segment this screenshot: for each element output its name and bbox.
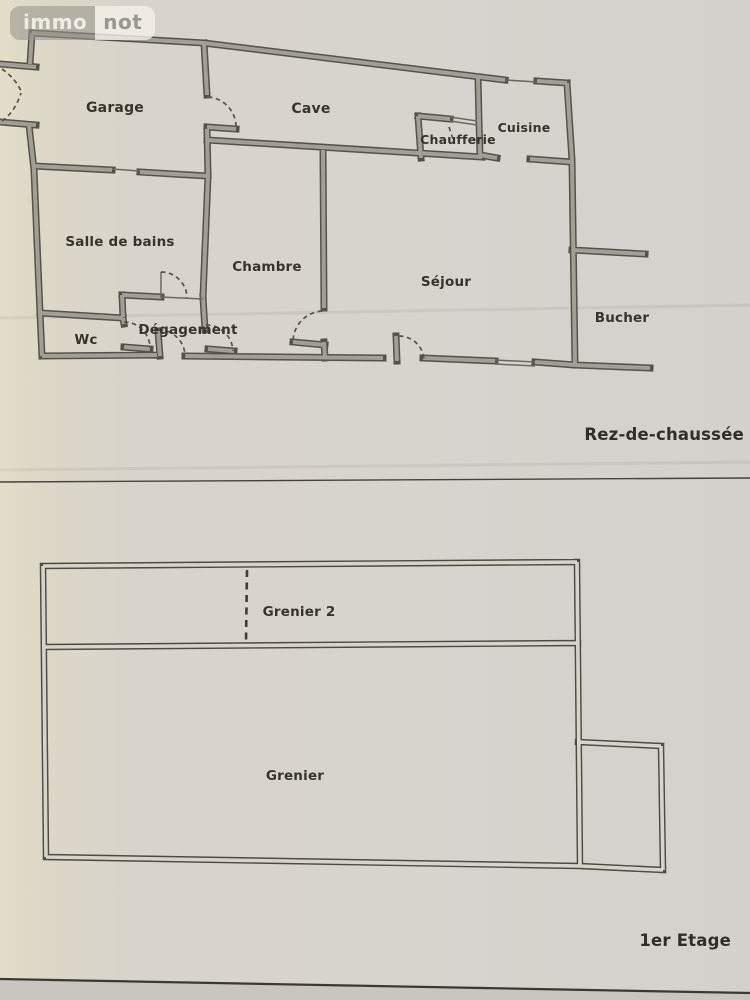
room-label-chaufferie: Chaufferie — [420, 132, 496, 147]
room-label-wc: Wc — [74, 332, 97, 348]
logo-not-segment: not — [95, 6, 155, 40]
first-floor-caption: 1er Etage — [639, 931, 731, 950]
room-label-cave: Cave — [291, 101, 330, 117]
logo-immo-segment: immo — [10, 6, 95, 40]
floor-plan-drawing: Garage Cave Chaufferie Cuisine Salle de … — [0, 0, 750, 1000]
floor-plan-photo: Garage Cave Chaufferie Cuisine Salle de … — [0, 0, 750, 1000]
room-label-chambre: Chambre — [232, 259, 302, 275]
room-label-grenier2: Grenier 2 — [263, 604, 336, 620]
room-label-cuisine: Cuisine — [498, 120, 551, 135]
room-label-salle-de-bains: Salle de bains — [65, 234, 174, 250]
ground-floor-caption: Rez-de-chaussée — [584, 425, 744, 444]
room-label-degagement: Dégagement — [138, 322, 238, 338]
room-label-grenier: Grenier — [266, 768, 324, 784]
immonot-watermark-logo: immo not — [10, 6, 155, 40]
room-label-garage: Garage — [86, 100, 144, 116]
room-label-bucher: Bucher — [595, 310, 650, 326]
room-label-sejour: Séjour — [421, 274, 471, 290]
